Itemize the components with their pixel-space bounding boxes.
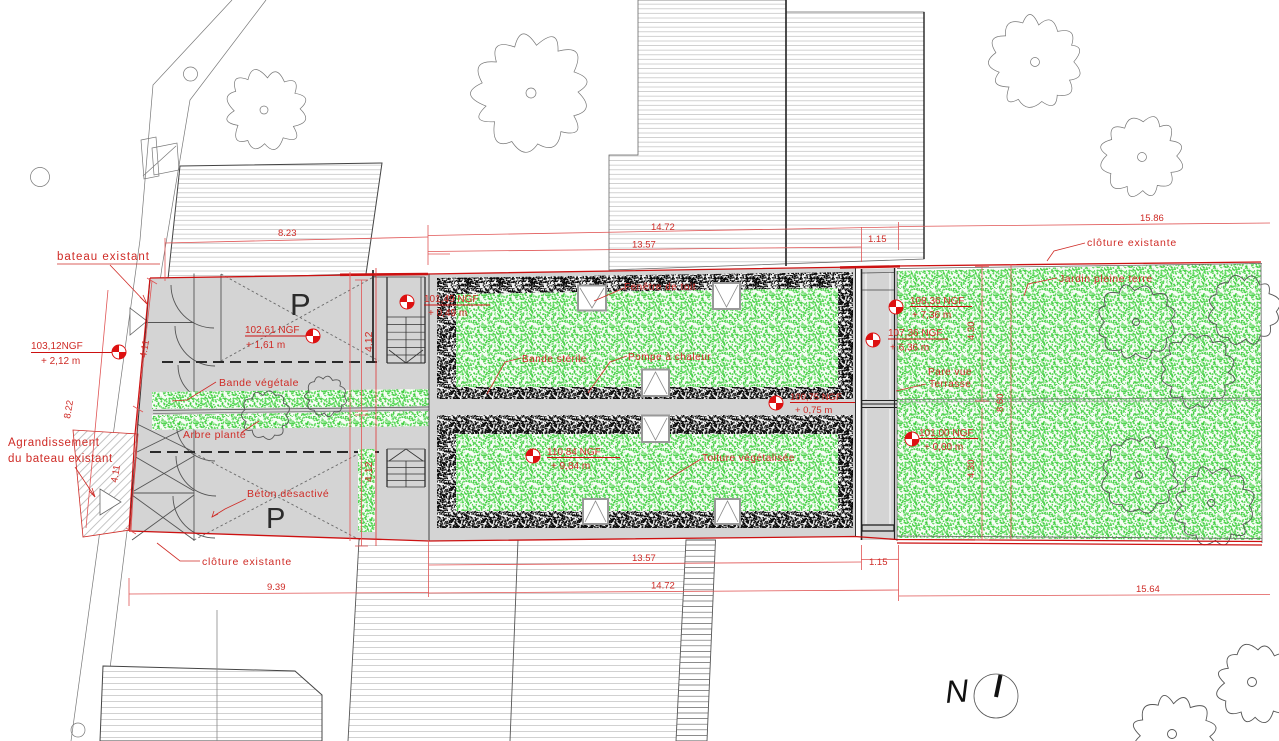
svg-text:1.15: 1.15 <box>868 234 887 245</box>
svg-text:101,49 NGF: 101,49 NGF <box>424 294 478 305</box>
svg-text:13.57: 13.57 <box>632 240 656 251</box>
svg-text:Arbre planté: Arbre planté <box>183 429 246 441</box>
svg-text:+ 0,49 m: + 0,49 m <box>428 308 467 319</box>
svg-text:4.30: 4.30 <box>966 322 977 341</box>
svg-text:101,00 NGF: 101,00 NGF <box>919 428 973 439</box>
svg-text:+ 7,36 m: + 7,36 m <box>912 310 951 321</box>
svg-text:Bande végétale: Bande végétale <box>219 377 299 389</box>
svg-text:+ 0,75 m: + 0,75 m <box>795 405 832 416</box>
svg-text:+ 9,84 m: + 9,84 m <box>551 461 590 472</box>
svg-text:+ 0,00 m: + 0,00 m <box>924 442 963 453</box>
svg-text:+ 1,61 m: + 1,61 m <box>246 340 285 351</box>
svg-text:1.15: 1.15 <box>869 557 888 568</box>
svg-text:9.39: 9.39 <box>267 582 286 593</box>
svg-text:P: P <box>290 287 311 322</box>
svg-text:110,84 NGF: 110,84 NGF <box>547 447 601 458</box>
svg-text:clôture existante: clôture existante <box>1087 237 1177 249</box>
svg-text:Jardin pleine terre: Jardin pleine terre <box>1059 273 1153 285</box>
svg-text:13.57: 13.57 <box>632 553 656 564</box>
svg-text:Bande stérile: Bande stérile <box>522 354 587 365</box>
svg-text:+ 2,12 m: + 2,12 m <box>41 356 80 367</box>
svg-text:Agrandissement: Agrandissement <box>8 437 100 449</box>
svg-text:108,36 NGF: 108,36 NGF <box>910 296 964 307</box>
svg-text:102,61 NGF: 102,61 NGF <box>245 325 299 336</box>
svg-text:N: N <box>944 672 970 710</box>
svg-text:Fenêtre de toit: Fenêtre de toit <box>624 282 696 293</box>
svg-text:15.64: 15.64 <box>1136 584 1160 595</box>
svg-text:107,36 NGF: 107,36 NGF <box>888 328 942 339</box>
svg-text:Toiture végétalisée: Toiture végétalisée <box>702 453 795 464</box>
svg-text:14.72: 14.72 <box>651 222 675 233</box>
svg-text:P: P <box>266 503 285 535</box>
svg-text:8.23: 8.23 <box>278 228 297 239</box>
svg-text:14.72: 14.72 <box>651 581 675 592</box>
svg-text:Pare vue: Pare vue <box>928 367 972 378</box>
svg-text:15.86: 15.86 <box>1140 213 1164 224</box>
svg-text:Terrasse: Terrasse <box>929 379 971 390</box>
svg-text:Béton désactivé: Béton désactivé <box>247 488 329 500</box>
svg-text:+ 6,36 m: + 6,36 m <box>890 343 929 354</box>
svg-text:du bateau existant: du bateau existant <box>8 453 113 465</box>
svg-text:bateau existant: bateau existant <box>57 251 150 263</box>
svg-text:4.12: 4.12 <box>363 331 375 352</box>
svg-text:4.30: 4.30 <box>966 460 977 479</box>
svg-text:100,75 NGF: 100,75 NGF <box>790 392 842 403</box>
svg-text:8.60: 8.60 <box>995 394 1006 413</box>
svg-text:Pompe à chaleur: Pompe à chaleur <box>628 352 711 363</box>
svg-text:103,12NGF: 103,12NGF <box>31 341 83 352</box>
svg-text:4.12: 4.12 <box>363 461 375 482</box>
svg-text:clôture existante: clôture existante <box>202 556 292 568</box>
